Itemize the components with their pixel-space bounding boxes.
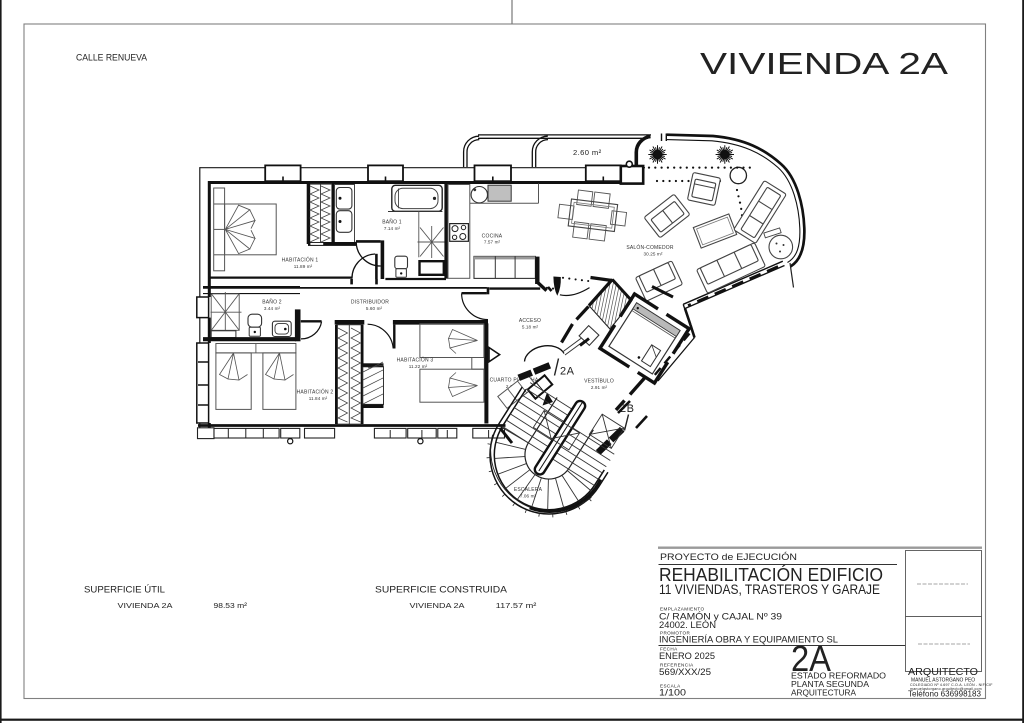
svg-text:Teléfono 636998183: Teléfono 636998183 [908,690,982,699]
svg-text:30.25 m²: 30.25 m² [644,252,663,257]
svg-text:5.60 m²: 5.60 m² [366,306,383,311]
svg-text:ARQUITECTURA: ARQUITECTURA [791,688,856,698]
svg-text:SUPERFICIE ÚTIL: SUPERFICIE ÚTIL [84,585,165,595]
svg-text:117.57 m²: 117.57 m² [496,601,537,610]
svg-text:7.57 m²: 7.57 m² [484,240,501,245]
svg-text:7.06 m²: 7.06 m² [520,494,537,499]
svg-text:DISTRIBUIDOR: DISTRIBUIDOR [351,300,389,306]
svg-text:PROYECTO de EJECUCIÓN: PROYECTO de EJECUCIÓN [660,552,797,563]
svg-text:BAÑO 1: BAÑO 1 [382,219,402,226]
svg-text:SUPERFICIE CONSTRUIDA: SUPERFICIE CONSTRUIDA [375,585,508,595]
svg-text:SALÓN-COMEDOR: SALÓN-COMEDOR [626,244,674,251]
svg-text:VIVIENDA 2A: VIVIENDA 2A [118,601,174,610]
svg-text:VESTÍBULO: VESTÍBULO [584,378,614,385]
svg-text:2.91 m²: 2.91 m² [591,385,608,390]
svg-text:VIVIENDA 2A: VIVIENDA 2A [700,47,949,81]
svg-text:2A: 2A [560,366,575,378]
svg-text:24002. LEÓN: 24002. LEÓN [659,620,716,631]
svg-text:HABITACIÓN 2: HABITACIÓN 2 [297,389,334,396]
svg-text:1/100: 1/100 [659,688,686,699]
svg-text:HABITACIÓN 3: HABITACIÓN 3 [397,357,434,364]
svg-text:VIVIENDA 2A: VIVIENDA 2A [410,601,466,610]
svg-text:BAÑO 2: BAÑO 2 [262,299,282,306]
svg-text:3.44 m²: 3.44 m² [264,306,281,311]
svg-text:ARQUITECTO: ARQUITECTO [908,666,978,678]
svg-text:11.84 m²: 11.84 m² [309,396,328,401]
svg-text:ACCESO: ACCESO [519,318,541,324]
svg-text:ESCALERA: ESCALERA [514,487,543,493]
svg-text:HABITACIÓN 1: HABITACIÓN 1 [282,257,319,264]
svg-text:11.22 m²: 11.22 m² [409,364,428,369]
svg-text:11.89 m²: 11.89 m² [294,264,313,269]
svg-text:569/XXX/25: 569/XXX/25 [659,667,711,678]
svg-text:5.18 m²: 5.18 m² [522,325,539,330]
svg-text:CALLE RENUEVA: CALLE RENUEVA [76,53,148,63]
svg-text:11 VIVIENDAS, TRASTEROS Y GARA: 11 VIVIENDAS, TRASTEROS Y GARAJE [659,582,880,597]
svg-text:2.60 m²: 2.60 m² [573,148,602,157]
svg-text:7.14 m²: 7.14 m² [384,226,401,231]
svg-text:ENERO 2025: ENERO 2025 [659,651,715,662]
svg-text:98.53 m²: 98.53 m² [214,601,248,610]
